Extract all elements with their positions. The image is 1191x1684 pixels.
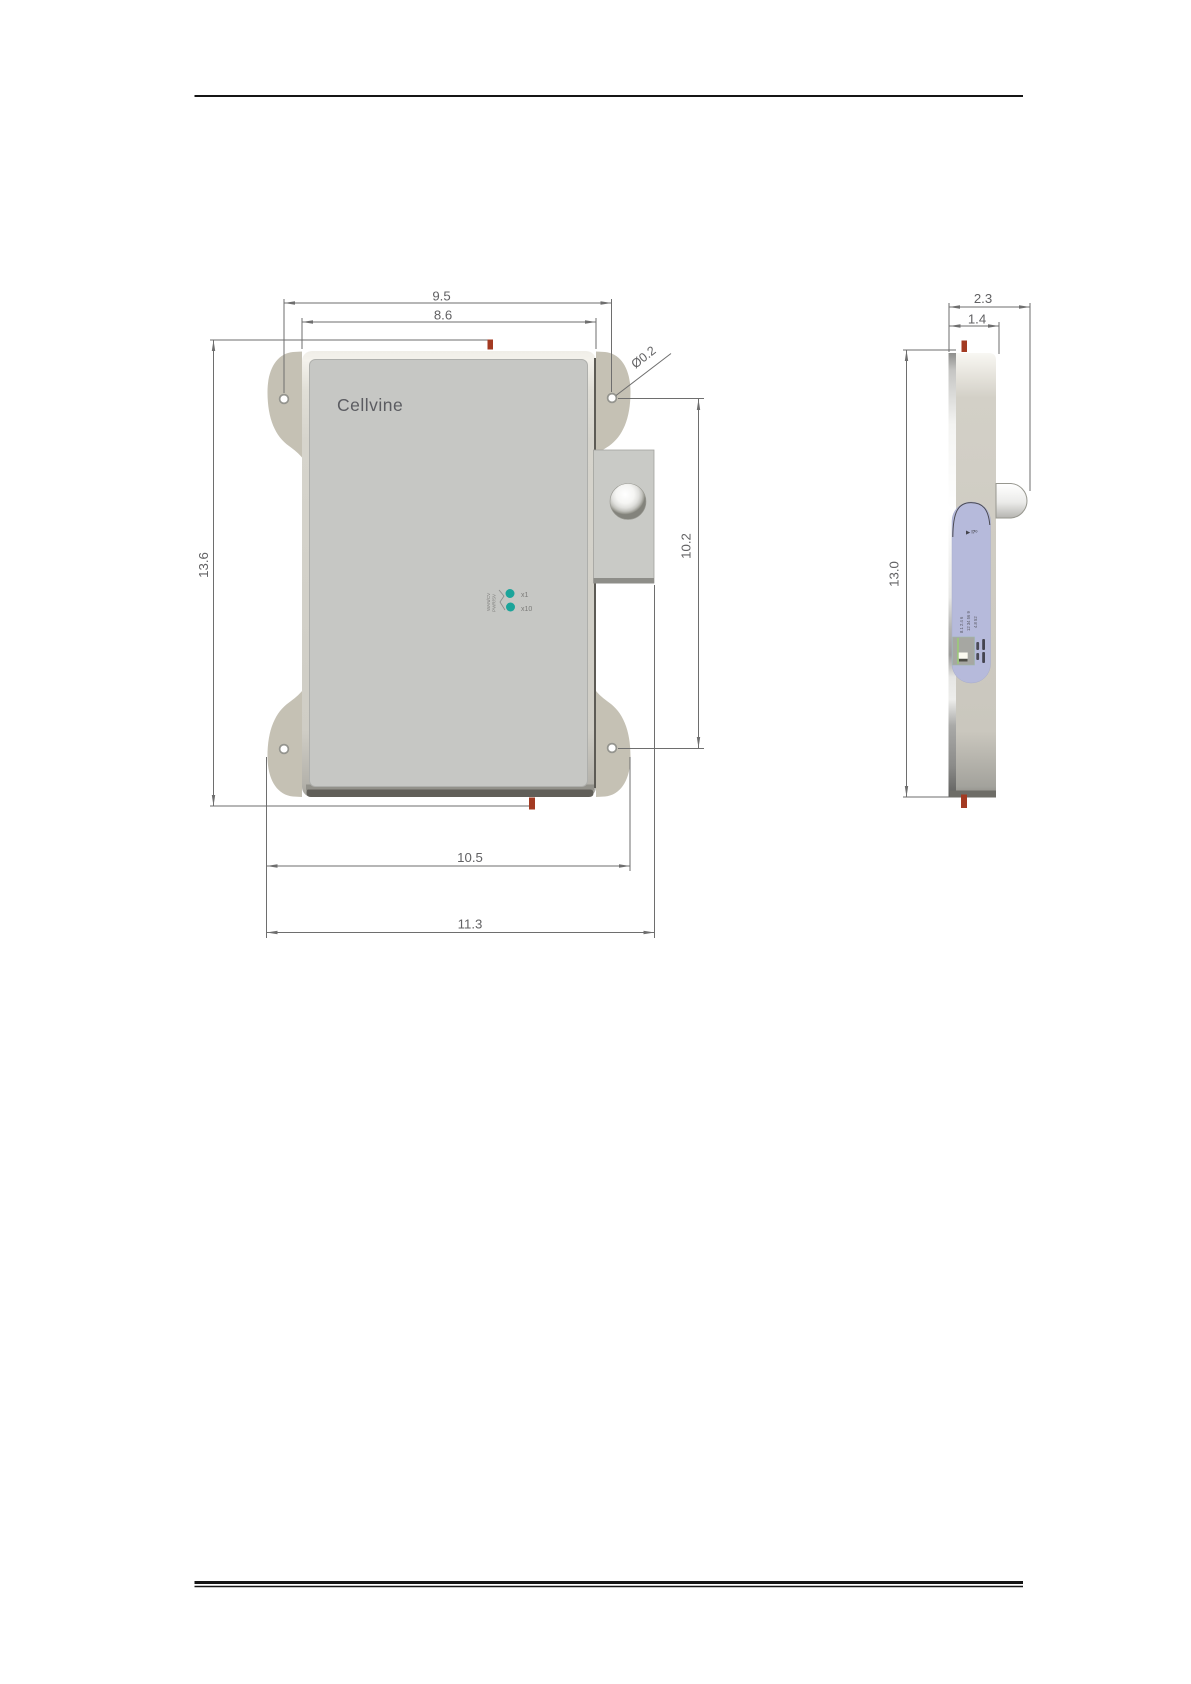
svg-text:13.6: 13.6 bbox=[196, 552, 211, 578]
svg-text:WAN/CV: WAN/CV bbox=[486, 592, 491, 611]
svg-text:x1: x1 bbox=[521, 592, 529, 599]
svg-text:1.4: 1.4 bbox=[968, 312, 986, 327]
svg-text:2.3: 2.3 bbox=[974, 291, 992, 306]
svg-text:8.6: 8.6 bbox=[434, 308, 452, 323]
svg-text:12 34 56 9: 12 34 56 9 bbox=[966, 611, 971, 631]
svg-text:10.5: 10.5 bbox=[457, 850, 483, 865]
svg-text:x10: x10 bbox=[521, 606, 532, 613]
svg-text:11.3: 11.3 bbox=[458, 917, 483, 932]
svg-text:PWR/SV: PWR/SV bbox=[492, 593, 497, 612]
svg-text:13.0: 13.0 bbox=[887, 561, 902, 587]
svg-text:10.2: 10.2 bbox=[679, 533, 694, 559]
svg-text:9.5: 9.5 bbox=[432, 289, 450, 304]
svg-text:4.8 52: 4.8 52 bbox=[973, 616, 978, 628]
svg-text:8.1 2.4 6: 8.1 2.4 6 bbox=[959, 616, 964, 633]
svg-text:Cellvine: Cellvine bbox=[337, 395, 403, 415]
svg-text:▶ ⁉º: ▶ ⁉º bbox=[966, 529, 977, 536]
